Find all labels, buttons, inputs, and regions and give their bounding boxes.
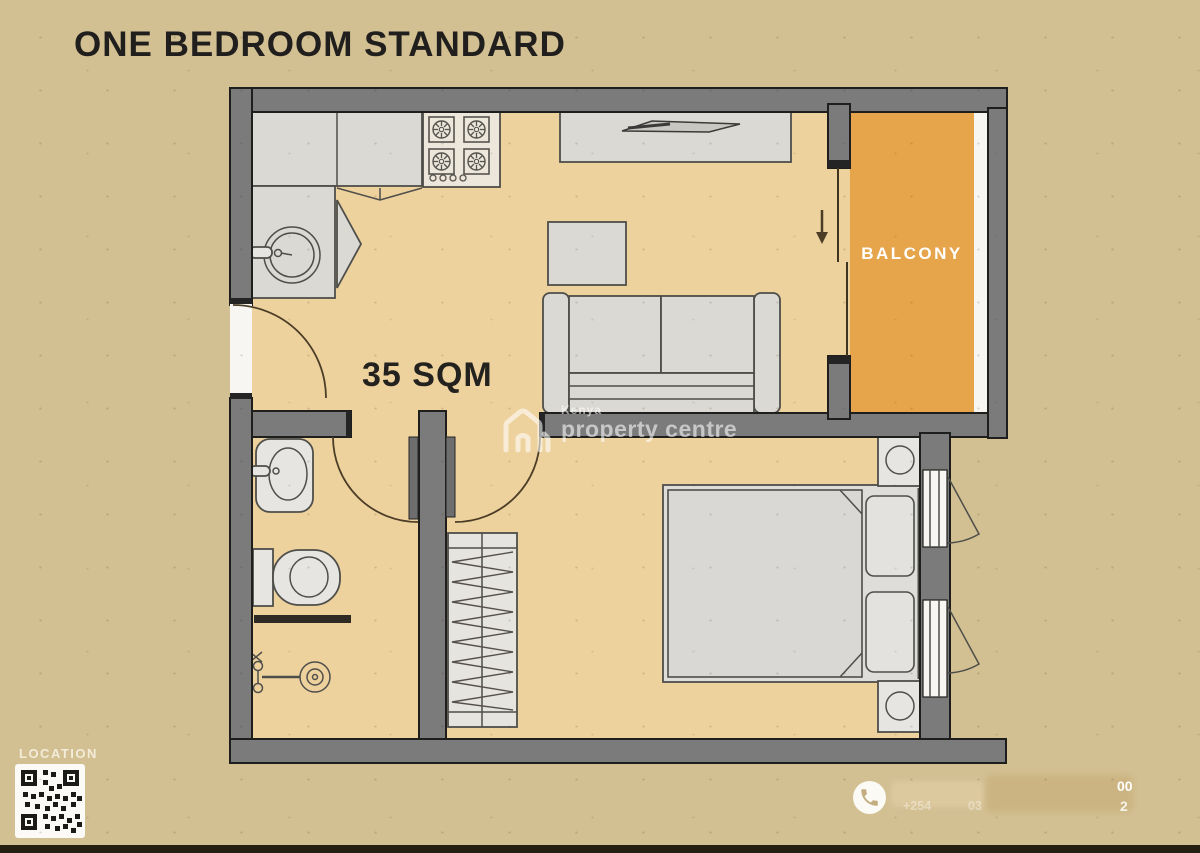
phone-icon [851, 779, 888, 816]
nightstand [878, 681, 923, 732]
phone-fragment-bottom-right: 2 [1120, 799, 1128, 814]
sofa-armrest-right [754, 293, 780, 413]
tv-console [560, 108, 791, 162]
phone-fragment-prefix: +254 [903, 800, 931, 814]
pillow [866, 496, 914, 576]
location-label: LOCATION [19, 747, 98, 761]
wall-bathroom-bedroom-divider [419, 411, 446, 739]
balcony-door-jamb-bottom [828, 356, 850, 419]
kitchen-counter-sink-run [252, 186, 335, 298]
bottom-edge-bar [0, 845, 1200, 853]
balcony-floor [850, 108, 974, 420]
balcony-door-jamb-top [828, 104, 850, 168]
page-title: ONE BEDROOM STANDARD [74, 26, 566, 65]
coffee-table [548, 222, 626, 285]
phone-fragment-mid: 03 [968, 800, 982, 814]
blurred-phone-number [986, 775, 1133, 812]
watermark: Kenya property centre [498, 404, 737, 456]
watermark-text: Kenya property centre [561, 404, 737, 442]
wall-balcony-east [988, 108, 1007, 438]
wall-bathroom-north [252, 411, 351, 437]
wall-west-lower [230, 398, 252, 762]
qr-code [15, 764, 85, 838]
sofa-armrest-left [543, 293, 569, 413]
mattress [668, 490, 862, 677]
wall-north [230, 88, 1007, 112]
wall-south [230, 739, 1006, 763]
bedroom-door-leaf [446, 437, 455, 517]
watermark-line2: property centre [561, 417, 737, 442]
wall-west-upper [230, 88, 252, 305]
flyer-canvas: ONE BEDROOM STANDARD 35 SQM BALCONY Keny… [0, 0, 1200, 853]
phone-fragment-top-right: 00 [1117, 779, 1133, 794]
entry-opening [230, 304, 252, 393]
nightstand [878, 435, 923, 486]
house-logo-icon [498, 404, 552, 456]
sofa [543, 293, 780, 413]
exterior-ground [950, 437, 1006, 739]
area-label: 35 SQM [362, 357, 493, 394]
sofa-cushion [661, 296, 754, 373]
kitchen-tap [250, 247, 272, 258]
bathroom-door-leaf [409, 437, 418, 519]
shower-screen [254, 615, 351, 623]
sofa-cushion [569, 296, 661, 373]
double-bed [663, 485, 922, 682]
balcony-label: BALCONY [850, 245, 974, 264]
wardrobe [448, 533, 517, 727]
pillow [866, 592, 914, 672]
toilet-tank [253, 549, 273, 606]
toilet [253, 549, 340, 606]
